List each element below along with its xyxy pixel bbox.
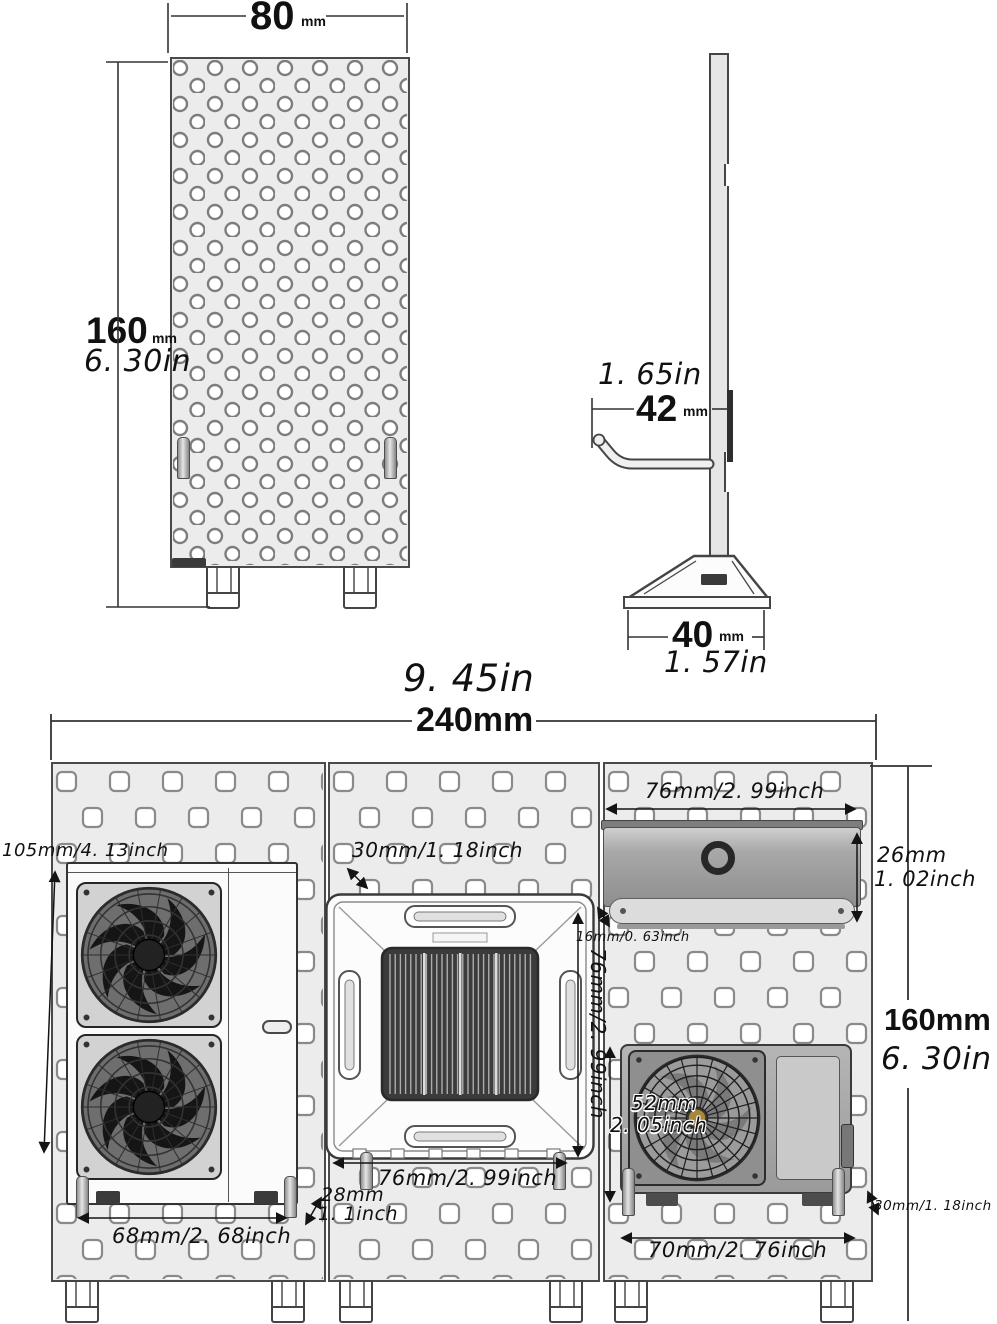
small-unit-depth-label: 30mm/1. 18inch <box>874 1200 992 1214</box>
cassette-depth-label: 30mm/1. 18inch <box>352 840 523 860</box>
board-foot <box>614 1280 648 1323</box>
hook-bracket <box>727 390 733 462</box>
fan-grille <box>76 882 222 1028</box>
pegboard-peg <box>76 1176 89 1218</box>
unit-foot-pad <box>96 1191 120 1204</box>
hook-depth-value: 42 <box>636 390 677 427</box>
small-unit-height-mm: 52mm <box>631 1093 697 1113</box>
unit-panel-divider <box>228 868 229 1202</box>
hook-depth-unit: mm <box>683 404 708 418</box>
unit-foot-pad <box>254 1191 278 1204</box>
wall-mount-unit <box>601 820 863 928</box>
board-foot <box>271 1280 305 1323</box>
dimension-diagram: 80 mm 160 mm 6. 30in 1. 65in 42 mm 40 mm… <box>0 0 997 1324</box>
side-view-hook <box>594 435 710 465</box>
hook-depth-inches: 1. 65in <box>598 360 702 389</box>
outdoor-unit-large <box>66 862 298 1205</box>
pegboard-peg <box>832 1168 845 1216</box>
unit-top-seam <box>68 872 296 873</box>
side-view-base <box>624 556 770 608</box>
wall-unit-height-inches: 1. 02inch <box>874 869 976 890</box>
panel-notch <box>724 164 732 186</box>
wall-unit-ring <box>701 841 735 875</box>
assembly-height-mm: 160mm <box>884 1004 991 1035</box>
side-view-panel <box>709 53 729 595</box>
wall-unit-width-label: 76mm/2. 99inch <box>645 781 824 802</box>
board-foot <box>820 1280 854 1323</box>
front-view-pegboard <box>170 57 410 568</box>
louver-screw <box>620 908 626 914</box>
unit-handle <box>262 1020 292 1034</box>
peg-depth-inches: 1. 1inch <box>318 1205 398 1224</box>
board-foot <box>206 566 240 609</box>
small-unit-height-inches: 2. 05inch <box>610 1115 707 1135</box>
assembly-width-inches: 9. 45in <box>403 660 534 697</box>
wall-unit-height-mm: 26mm <box>877 845 947 866</box>
assembly-height-inches: 6. 30in <box>881 1044 992 1075</box>
pegboard-peg <box>384 437 397 479</box>
cassette-unit <box>325 893 595 1160</box>
small-unit-width-label: 70mm/2. 76inch <box>648 1240 827 1261</box>
front-width-value: 80 <box>250 0 295 36</box>
louver-screw <box>838 908 844 914</box>
wall-unit-louver <box>609 898 855 924</box>
unit-foot-pad <box>646 1193 678 1206</box>
cassette-center-grille <box>382 948 538 1100</box>
base-width-unit: mm <box>719 629 744 643</box>
front-height-inches: 6. 30in <box>84 347 191 377</box>
small-unit-valve-cover <box>841 1124 854 1168</box>
assembly-width-mm: 240mm <box>416 703 533 737</box>
cassette-label-plate <box>433 933 487 942</box>
large-unit-width-label: 68mm/2. 68inch <box>112 1226 291 1247</box>
pegboard-peg <box>284 1176 297 1218</box>
wall-unit-depth-label: 16mm/0. 63inch <box>576 931 690 944</box>
unit-foot-pad <box>802 1193 834 1206</box>
board-foot <box>65 1280 99 1323</box>
fan-grille <box>76 1034 222 1180</box>
small-unit-side-panel <box>776 1056 840 1180</box>
board-foot <box>549 1280 583 1323</box>
pegboard-peg <box>622 1168 635 1216</box>
front-height-unit: mm <box>152 331 177 345</box>
wall-unit-shadow <box>617 924 845 929</box>
board-foot <box>339 1280 373 1323</box>
large-unit-height-label: 105mm/4. 13inch <box>2 842 169 860</box>
base-width-inches: 1. 57in <box>664 648 768 677</box>
cassette-height-label: 76mm/2. 99inch <box>588 948 608 1119</box>
cassette-width-label: 76mm/2. 99inch <box>378 1168 557 1189</box>
pegboard-peg <box>177 437 190 479</box>
board-foot <box>343 566 377 609</box>
front-width-unit: mm <box>301 14 326 28</box>
brand-logo-badge <box>172 558 206 567</box>
